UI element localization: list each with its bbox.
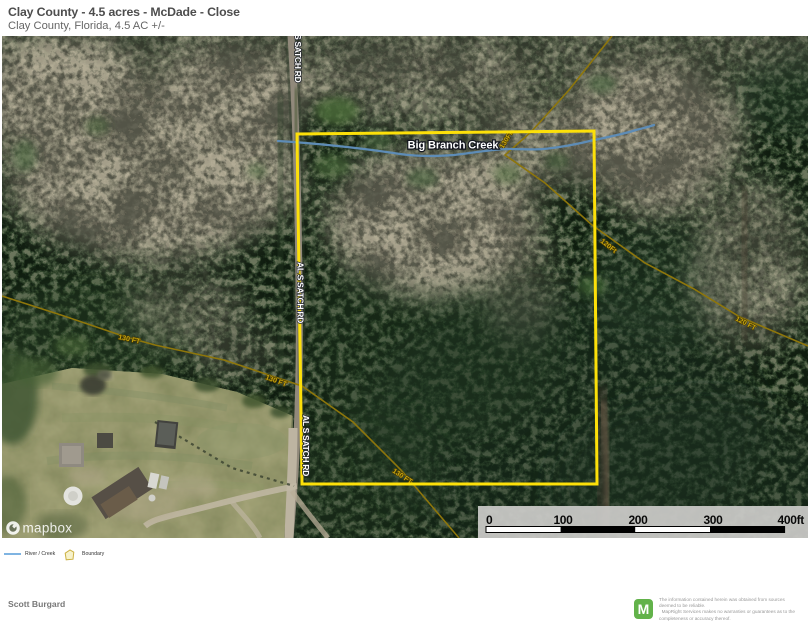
svg-text:200: 200	[628, 513, 648, 527]
svg-text:0: 0	[486, 513, 493, 527]
svg-text:AL S SATCH RD: AL S SATCH RD	[296, 262, 306, 323]
svg-text:AL S SATCH RD: AL S SATCH RD	[301, 415, 311, 476]
svg-text:100: 100	[553, 513, 573, 527]
svg-text:S SATCH RD: S SATCH RD	[293, 36, 303, 83]
svg-text:Big Branch Creek: Big Branch Creek	[408, 139, 500, 151]
svg-text:mapbox: mapbox	[23, 521, 73, 536]
svg-text:400ft: 400ft	[777, 513, 804, 527]
svg-text:300: 300	[703, 513, 723, 527]
